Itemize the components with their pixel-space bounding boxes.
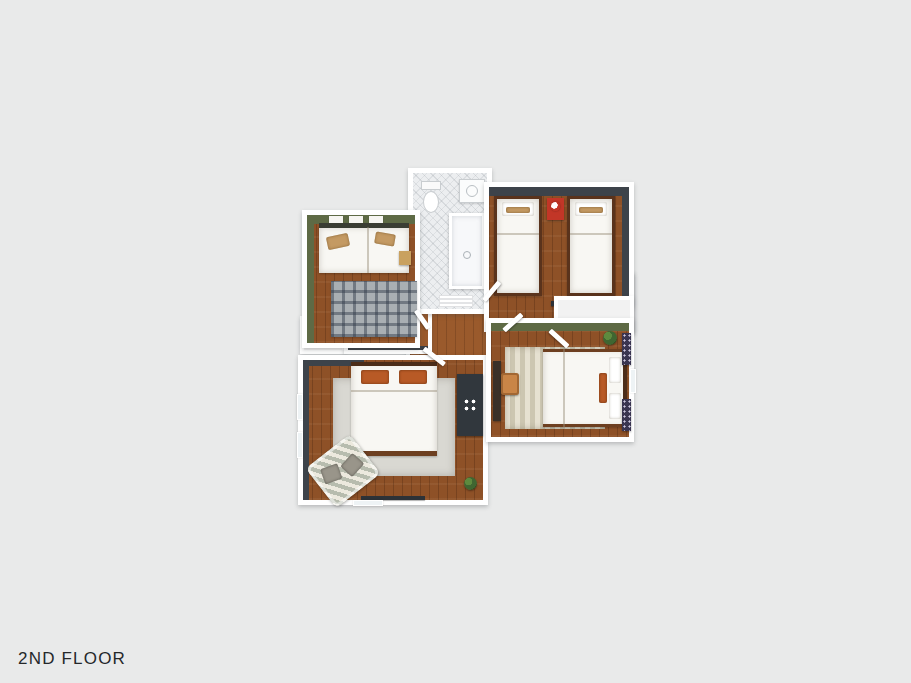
daybed-frame (319, 223, 409, 228)
plaid-rug (331, 281, 417, 337)
pillow-gray (340, 453, 364, 477)
window (297, 394, 303, 420)
master-left-wall (303, 360, 309, 500)
wall-decor-trays (329, 216, 383, 223)
window (297, 432, 303, 458)
pillow-accent (374, 231, 396, 246)
twin-bed-right (567, 196, 615, 296)
floor-plan (298, 168, 634, 514)
duvet-fold (570, 233, 612, 235)
toy-ball-icon (551, 202, 560, 211)
pillow-accent (579, 207, 603, 213)
desk (493, 361, 501, 421)
toilet-icon (421, 181, 441, 190)
daybed (319, 227, 409, 273)
pillow (609, 357, 621, 383)
toilet-bowl-icon (423, 191, 439, 213)
window (630, 369, 636, 393)
pillow (609, 393, 621, 419)
kids-room-right-wall (622, 187, 629, 296)
duvet-fold (351, 390, 437, 392)
dresser (457, 374, 483, 436)
window (353, 500, 383, 506)
bath-mat (439, 295, 473, 307)
guest-room-left-wall (307, 215, 314, 343)
bathroom (408, 168, 492, 314)
pillow-accent (506, 207, 530, 213)
pillow-accent (326, 233, 350, 250)
master-bedroom (298, 355, 488, 505)
plant-icon (464, 477, 477, 490)
mattress-split (367, 227, 369, 273)
shower-icon (449, 213, 485, 289)
side-table (399, 251, 411, 265)
guest-bedroom (302, 210, 420, 348)
bed-frame-edge (543, 424, 627, 427)
bedroom3-bed (543, 349, 627, 427)
pillow-gray (320, 463, 342, 484)
dresser-knobs (463, 398, 477, 412)
pillow-orange (399, 370, 427, 384)
sink-icon (459, 179, 485, 203)
curtain (622, 333, 631, 365)
screenshot-root: { "page": { "background_color": "#e9eaea… (0, 0, 911, 683)
twin-bed-left (494, 196, 542, 296)
floor-label: 2ND FLOOR (18, 649, 126, 669)
bed-frame-edge (543, 349, 627, 352)
pillow-accent (599, 373, 607, 403)
desk-chair (501, 373, 519, 395)
duvet-fold (563, 349, 565, 427)
kids-room-top-wall (489, 187, 629, 196)
pillow-orange (361, 370, 389, 384)
red-nightstand (547, 198, 564, 220)
headboard (351, 362, 437, 366)
duvet-fold (497, 233, 539, 235)
plant-icon (603, 331, 617, 345)
curtain (622, 399, 631, 431)
master-bed (351, 362, 437, 456)
